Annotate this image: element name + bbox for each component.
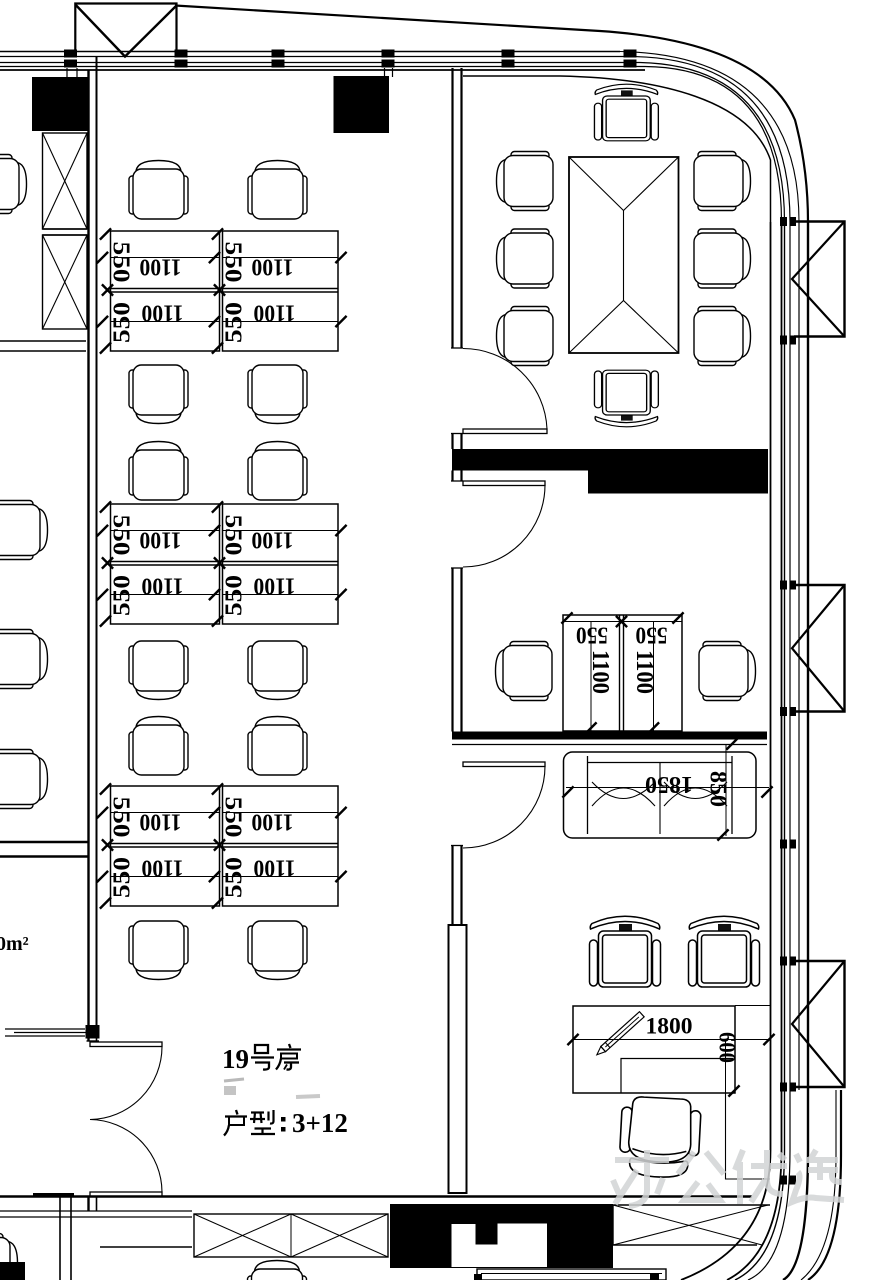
svg-text:550: 550 (222, 857, 248, 898)
svg-text:1850: 1850 (645, 771, 693, 797)
svg-text:1800: 1800 (646, 1014, 693, 1039)
svg-text:3+12: 3+12 (292, 1108, 348, 1138)
svg-text:550: 550 (110, 857, 136, 898)
svg-text:1100: 1100 (142, 573, 184, 599)
svg-text:1100: 1100 (140, 527, 182, 553)
svg-text:1100: 1100 (142, 855, 184, 881)
svg-text:1100: 1100 (252, 254, 294, 280)
svg-text:850: 850 (705, 771, 731, 807)
svg-text:550: 550 (222, 575, 248, 616)
svg-text:550: 550 (110, 575, 136, 616)
svg-text:1100: 1100 (254, 300, 296, 326)
svg-text:600: 600 (715, 1032, 740, 1063)
svg-text:1100: 1100 (142, 300, 184, 326)
svg-text:550: 550 (220, 515, 246, 556)
svg-text:550: 550 (220, 797, 246, 838)
svg-text:1100: 1100 (140, 254, 182, 280)
svg-text:550: 550 (108, 797, 134, 838)
svg-text:1100: 1100 (254, 855, 296, 881)
svg-text:550: 550 (108, 515, 134, 556)
svg-text:1100: 1100 (252, 527, 294, 553)
svg-text:550: 550 (222, 302, 248, 343)
svg-text:1100: 1100 (252, 809, 294, 835)
svg-text:1100: 1100 (631, 650, 657, 694)
svg-text:550: 550 (108, 242, 134, 283)
svg-text:19: 19 (222, 1044, 249, 1074)
svg-text:1100: 1100 (140, 809, 182, 835)
svg-text:1100: 1100 (587, 650, 613, 694)
svg-text:50m²: 50m² (0, 933, 29, 955)
svg-text:1100: 1100 (254, 573, 296, 599)
svg-text:550: 550 (110, 302, 136, 343)
svg-text:550: 550 (576, 622, 608, 648)
svg-text:550: 550 (636, 622, 668, 648)
svg-text:550: 550 (220, 242, 246, 283)
